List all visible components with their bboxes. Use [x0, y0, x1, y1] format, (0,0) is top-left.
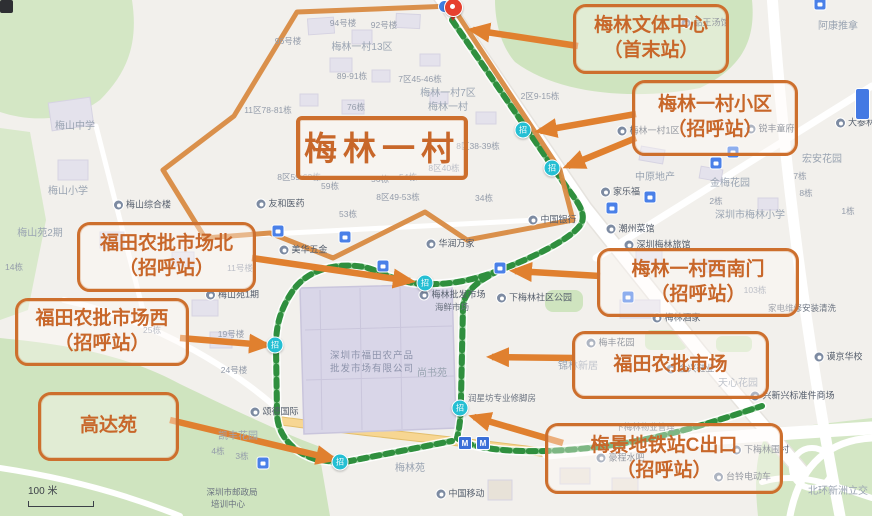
callout-arrow [568, 138, 636, 166]
callout-arrow [492, 357, 574, 358]
scale-text: 100 米 [28, 486, 57, 497]
map-control-icon[interactable] [0, 0, 13, 13]
scale-bar-line [28, 501, 94, 507]
callout-arrow [515, 271, 600, 276]
market-building [300, 284, 456, 434]
road-sign-badge [855, 88, 870, 120]
callout-arrow [252, 258, 410, 281]
scale-bar: 100 米 [28, 482, 94, 507]
map-canvas[interactable] [0, 0, 872, 516]
callout-arrow [540, 114, 636, 131]
callout-arrow [180, 338, 266, 345]
callout-arrow [474, 417, 563, 443]
map-screenshot[interactable]: 梅山中学梅山小学梅山综合楼友和医药梅山苑2期梅山苑1期14栋11号楼19号楼24… [0, 0, 872, 516]
